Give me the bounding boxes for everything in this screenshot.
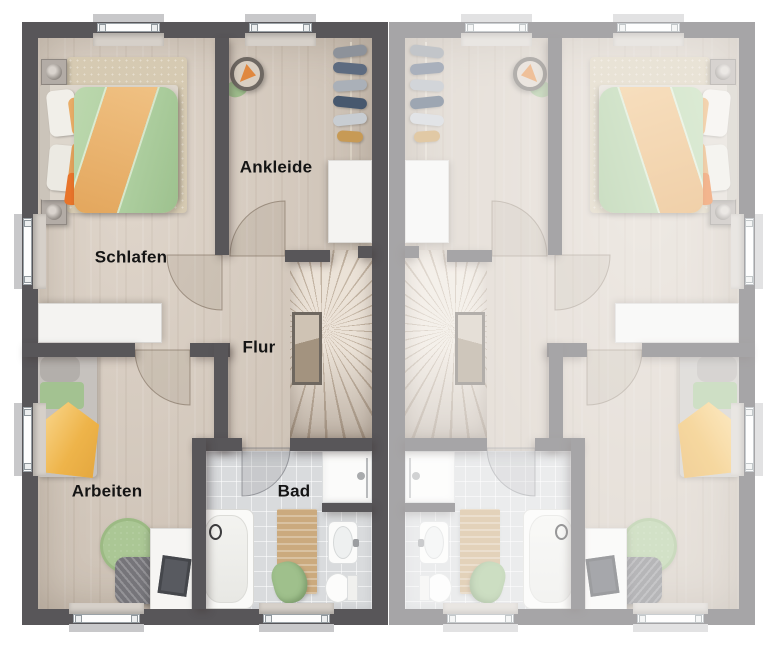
window — [249, 14, 312, 48]
wall — [214, 343, 228, 451]
wall — [548, 38, 562, 255]
window — [729, 407, 763, 472]
door-arc — [167, 255, 222, 310]
window — [617, 14, 680, 48]
room-label-schlafen: Schlafen — [95, 249, 167, 266]
party-wall — [372, 22, 388, 625]
window — [729, 218, 763, 285]
window — [637, 603, 704, 637]
door-arc — [487, 448, 535, 496]
unit-right-mirrored — [389, 22, 755, 625]
room-label-arbeiten: Arbeiten — [72, 483, 143, 500]
door-arc — [230, 201, 285, 256]
unit-left: Schlafen Ankleide Flur Arbeiten Bad — [22, 22, 388, 625]
window — [14, 407, 48, 472]
wall — [290, 438, 372, 451]
door-arc — [492, 201, 547, 256]
window — [447, 603, 514, 637]
wall — [322, 503, 372, 512]
wall — [22, 22, 388, 38]
wall — [447, 250, 492, 262]
wall — [215, 38, 229, 255]
wall — [549, 343, 563, 451]
room-label-ankleide: Ankleide — [240, 159, 312, 176]
wall — [405, 246, 419, 258]
wall — [358, 246, 372, 258]
room-label-bad: Bad — [278, 483, 311, 500]
wall — [405, 438, 487, 451]
door-arc — [555, 255, 610, 310]
wall — [192, 438, 206, 609]
wall — [285, 250, 330, 262]
window — [14, 218, 48, 285]
wall — [389, 22, 755, 38]
floor-plan: Schlafen Ankleide Flur Arbeiten Bad — [0, 0, 775, 647]
wall — [22, 343, 135, 357]
window — [97, 14, 160, 48]
wall — [571, 438, 585, 609]
window — [263, 603, 330, 637]
window — [73, 603, 140, 637]
party-wall — [389, 22, 405, 625]
wall — [22, 22, 38, 625]
door-arc — [587, 350, 642, 405]
wall — [405, 503, 455, 512]
room-label-flur: Flur — [243, 339, 276, 356]
door-arc — [135, 350, 190, 405]
window — [465, 14, 528, 48]
wall — [739, 22, 755, 625]
wall — [642, 343, 755, 357]
